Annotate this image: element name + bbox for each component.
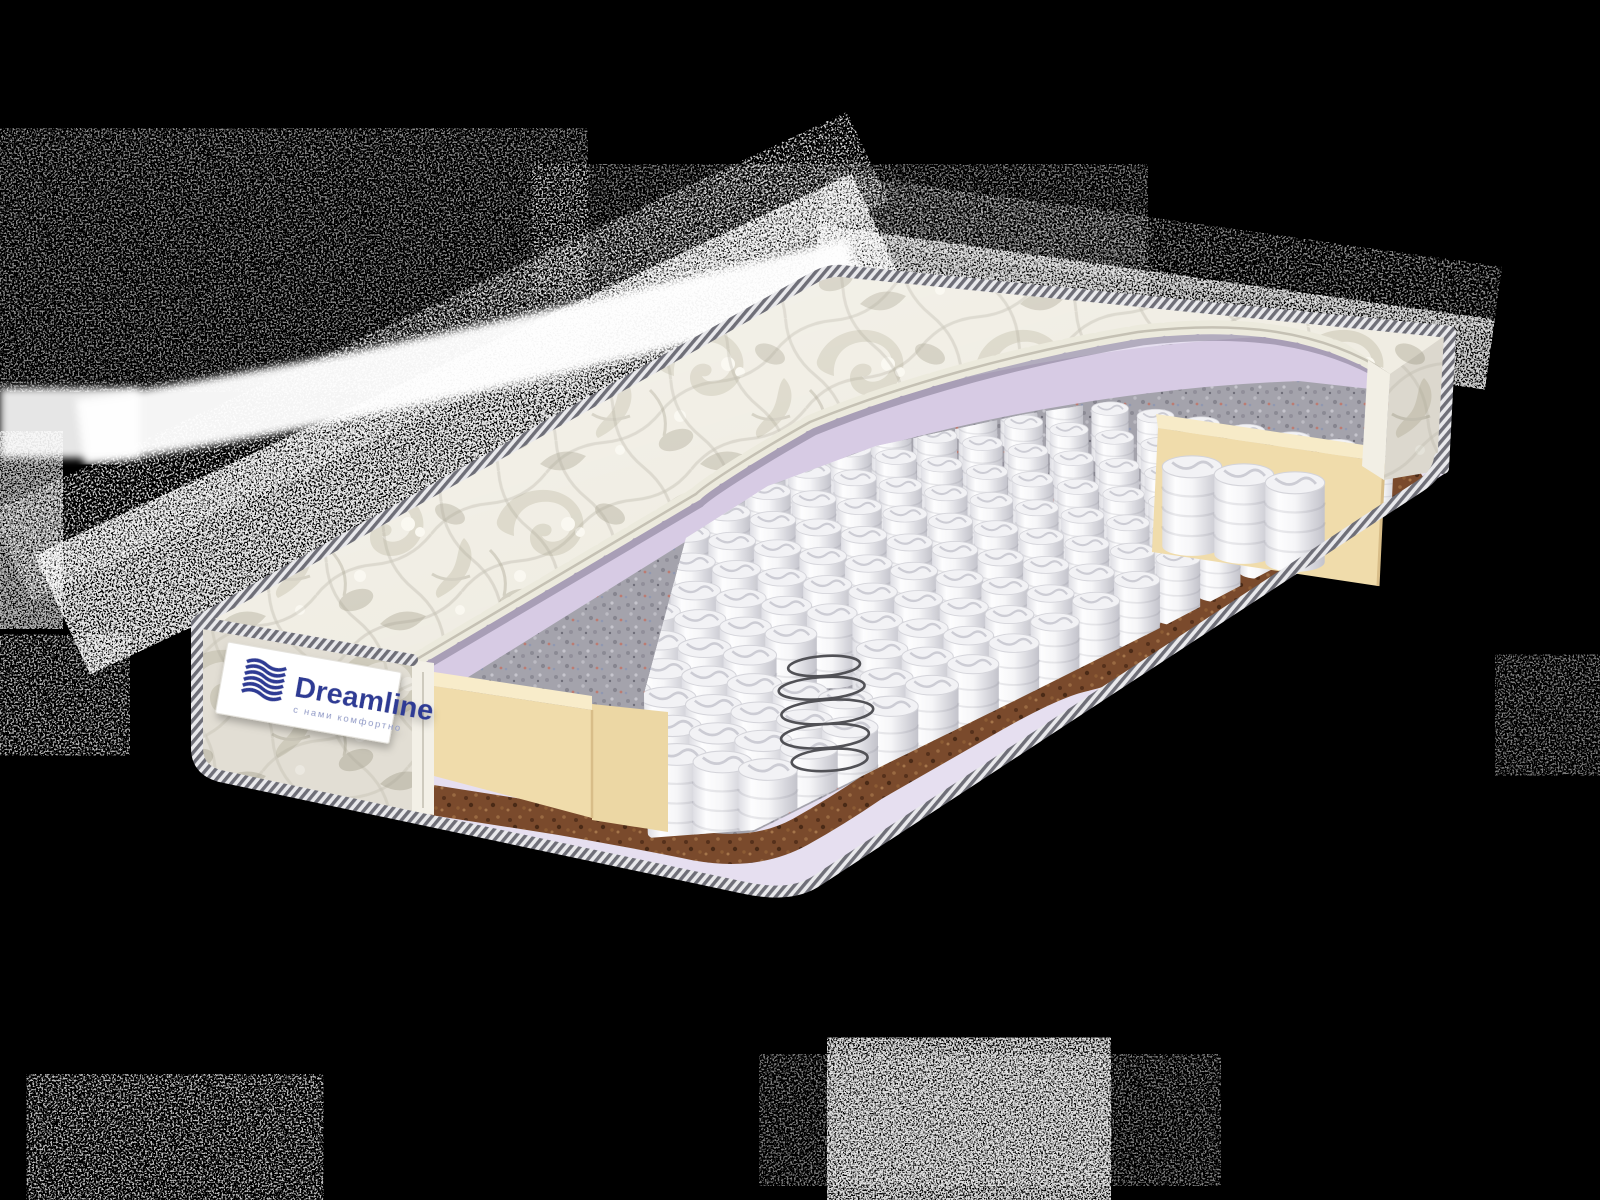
- piping-right-corner: [1443, 334, 1450, 468]
- pocket-springs-front-row: [1162, 456, 1324, 572]
- mattress-cutaway-render: Dreamline с нами комфортно: [0, 0, 1600, 1200]
- product-image-stage: Dreamline с нами комфортно: [0, 0, 1600, 1200]
- cover-cut-edge: [412, 660, 434, 815]
